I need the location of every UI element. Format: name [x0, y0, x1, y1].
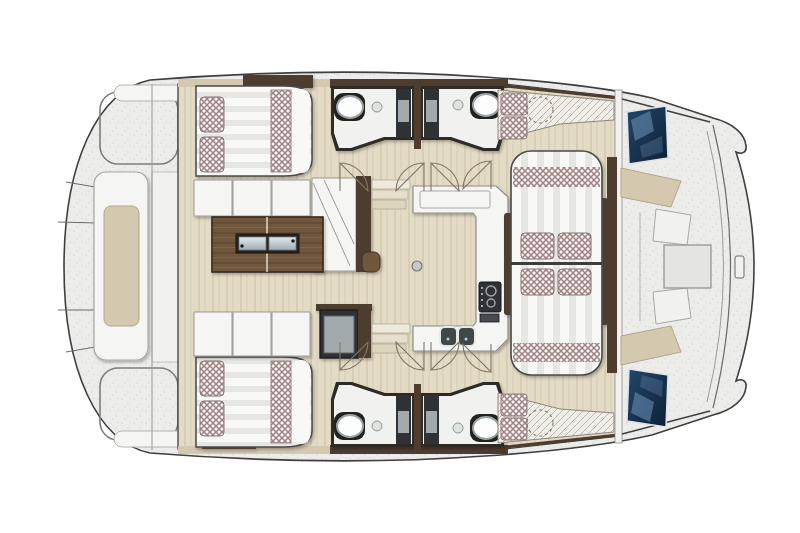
- starboard-pillow-1: [200, 361, 224, 396]
- port-bolster: [271, 90, 291, 172]
- basin-port: [337, 96, 363, 118]
- galley-stove: [479, 282, 501, 322]
- floor-plan-canvas: [0, 0, 800, 533]
- heads-divider-bottom: [414, 384, 421, 450]
- dinette-cushion-2: [558, 233, 591, 259]
- fitting-port: [372, 102, 382, 112]
- table-hinge-left: [239, 237, 266, 250]
- cockpit-bench-bottom: [653, 288, 691, 324]
- galley-floor-fitting: [412, 261, 422, 271]
- starboard-berth: [196, 357, 312, 449]
- port-mattress-foot: [292, 89, 310, 173]
- boat-floor-plan: [0, 0, 800, 533]
- companionway-steps-starboard: [372, 324, 410, 353]
- dinette: [504, 151, 608, 375]
- companionway-steps-port: [372, 180, 410, 209]
- saloon-table: [212, 217, 323, 272]
- aft-sunpad-platform: [94, 172, 148, 360]
- fitting-stbd: [453, 100, 463, 110]
- dinette-cushion-3: [521, 269, 554, 295]
- cockpit-bench-top: [653, 209, 691, 245]
- dinette-cushion-1: [521, 233, 554, 259]
- sofa-arm-cap: [362, 252, 380, 272]
- table-hinge-right: [269, 237, 296, 250]
- bulkhead-brown-bar: [607, 157, 617, 373]
- port-pillow-1: [200, 97, 224, 132]
- cockpit-table: [664, 245, 711, 288]
- hull-window-top: [627, 106, 668, 164]
- dinette-band-top: [513, 167, 600, 187]
- hull-window-bottom: [627, 369, 668, 427]
- storage-module-lid: [324, 316, 354, 353]
- saloon-sofa-bottom: [194, 304, 372, 358]
- dinette-cushion-4: [558, 269, 591, 295]
- aft-sunpad-cushion: [104, 206, 139, 326]
- starboard-bolster: [271, 361, 291, 443]
- starboard-mattress-foot: [292, 360, 310, 444]
- basin-stbd: [473, 94, 499, 116]
- dinette-fold-line: [511, 262, 602, 265]
- port-berth: [196, 75, 313, 176]
- dinette-band-bottom: [513, 343, 600, 362]
- port-pillow-2: [200, 137, 224, 172]
- starboard-pillow-2: [200, 401, 224, 436]
- anchor-fitting: [735, 256, 744, 278]
- heads-divider-top: [414, 83, 421, 149]
